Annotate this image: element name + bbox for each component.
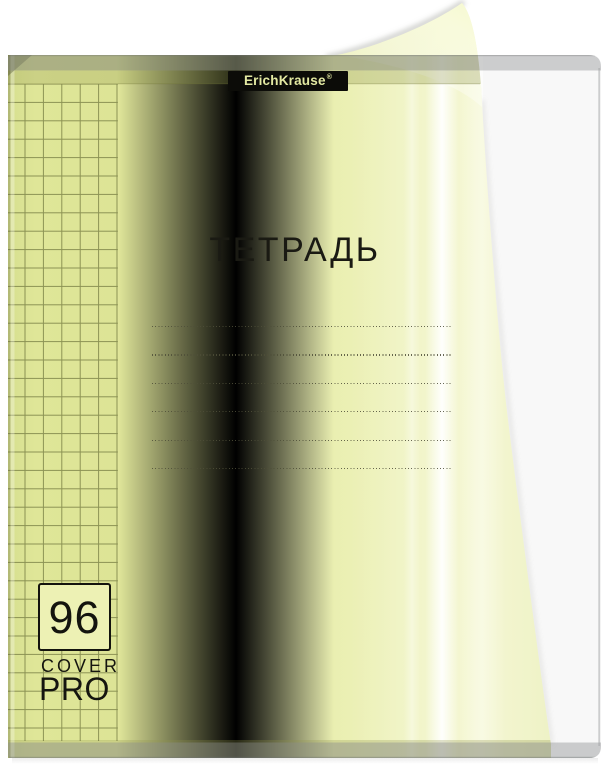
drop-shadow (12, 758, 598, 764)
bottom-edge-line (8, 757, 601, 758)
spine-shade (8, 55, 11, 758)
registered-mark: ® (327, 74, 332, 81)
owner-name-lines (152, 326, 453, 496)
owner-name-line (152, 440, 453, 441)
owner-name-line (152, 354, 453, 355)
top-edge-line (8, 55, 601, 56)
brand-logo: ErichKrause® (228, 71, 348, 91)
brand-name: ErichKrause® (244, 74, 332, 88)
owner-name-line (152, 383, 453, 384)
bottom-plastic-edge-band (8, 743, 601, 759)
owner-name-line (152, 468, 453, 469)
right-plastic-edge (598, 68, 600, 746)
notebook-title: ТЕТРАДЬ (128, 233, 462, 267)
top-plastic-edge-band (8, 55, 601, 71)
sheet-count: 96 (48, 595, 100, 640)
cover-pro-wordmark-line2: PRO (39, 673, 110, 705)
notebook-product-photo: ErichKrause® ТЕТРАДЬ 96 COVER PRO (0, 0, 616, 767)
spine-highlight (11, 55, 15, 758)
sheet-count-badge: 96 (38, 583, 111, 651)
owner-name-line (152, 326, 453, 327)
owner-name-line (152, 411, 453, 412)
